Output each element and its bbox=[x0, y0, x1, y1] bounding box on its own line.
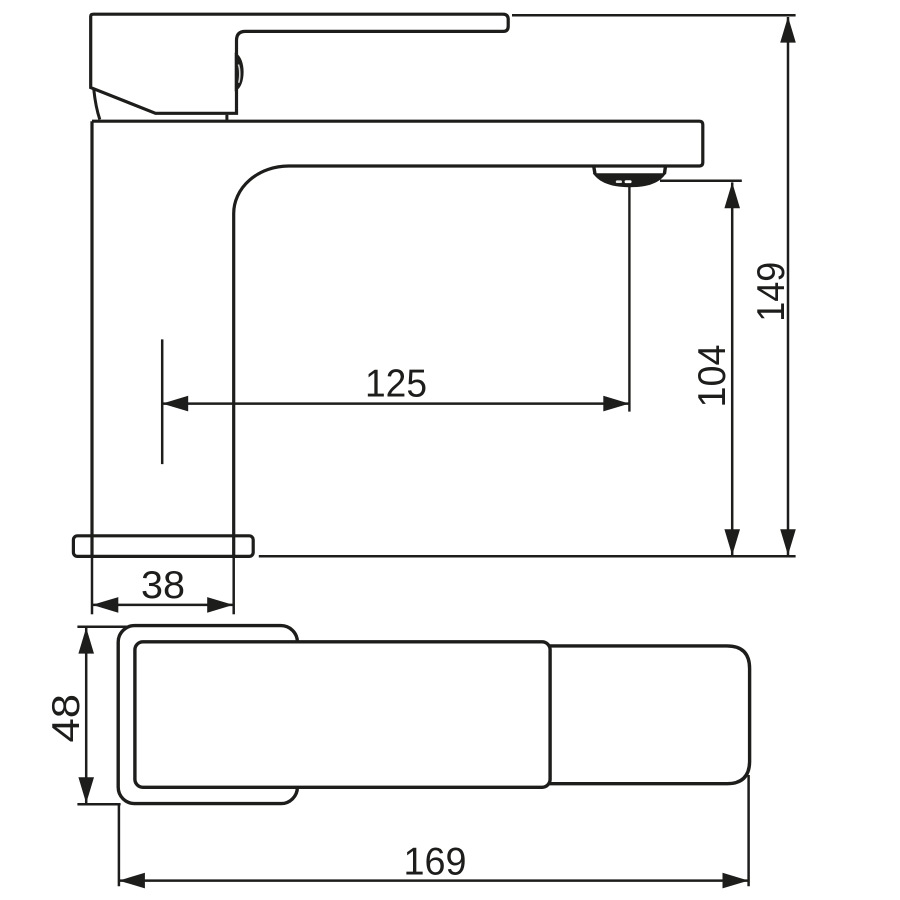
svg-text:104: 104 bbox=[691, 345, 734, 408]
svg-text:169: 169 bbox=[404, 841, 467, 884]
svg-text:38: 38 bbox=[141, 564, 185, 607]
svg-text:125: 125 bbox=[365, 362, 427, 405]
svg-text:48: 48 bbox=[45, 694, 88, 743]
svg-text:149: 149 bbox=[750, 262, 793, 322]
